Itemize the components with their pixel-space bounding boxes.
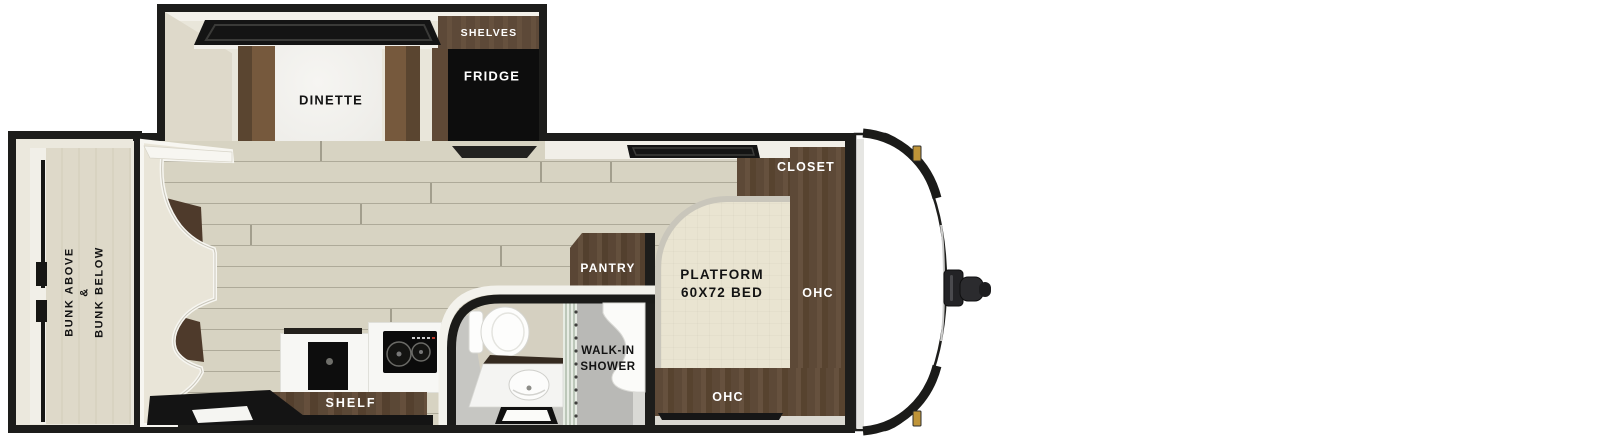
bunk-room-label: BUNK ABOVE & BUNK BELOW [63,246,108,338]
cap-latch-top [913,146,921,161]
front-cap-trim-top [863,133,937,198]
floor-plank-joint [610,162,612,182]
kitchen-counter-trim [284,328,362,334]
fridge [448,49,539,143]
front-cap-shading [857,139,864,429]
front-bulkhead-wall [845,133,855,433]
floor-plank-joint [250,225,252,245]
front-cap [855,134,946,430]
hitch-coupler [944,270,991,306]
front-cap-trim-bottom [863,366,937,431]
floor-plank-joint [430,183,432,203]
bunk-door-latch-upper [36,262,47,286]
bed-label: PLATFORM 60X72 BED [680,266,764,302]
dinette-label: DINETTE [299,93,363,108]
kitchen-sink-panel [308,342,348,390]
ohc-bottom-label: OHC [712,390,743,404]
bedroom-partition-wall [645,233,655,425]
fridge-label: FRIDGE [464,69,520,84]
exterior-wall-bottom [133,425,855,433]
fridge-cabinet-side [432,48,448,152]
ohc-cabinet-right [790,147,845,375]
floor-plank-joint [360,204,362,224]
shower-label: WALK-IN SHOWER [580,343,635,375]
bedroom-wall-strip [655,416,845,425]
floor-plank-joint [500,246,502,266]
ohc-right-label: OHC [802,286,833,300]
ohc-cabinet-bottom [655,368,845,416]
pantry-label: PANTRY [580,261,635,275]
shelves-label: SHELVES [461,27,518,39]
floor-plank-joint [540,162,542,182]
shower-glass-door [563,303,577,425]
closet-label: CLOSET [777,160,835,174]
kitchen-base-trim [277,415,433,425]
shelf-label: SHELF [326,396,377,410]
bunk-door-latch-lower [36,300,47,322]
sink-faucet-dot [326,358,333,365]
exterior-wall-top-left [133,133,165,141]
exterior-wall-top-right [539,133,855,141]
rv-floorplan: BUNK ABOVE & BUNK BELOW SHELVES FRIDGE D… [0,0,1600,445]
cooktop [383,331,437,373]
cap-latch-bottom [913,411,921,426]
floor-plank-joint [320,141,322,161]
front-cap-highlight [941,225,944,341]
